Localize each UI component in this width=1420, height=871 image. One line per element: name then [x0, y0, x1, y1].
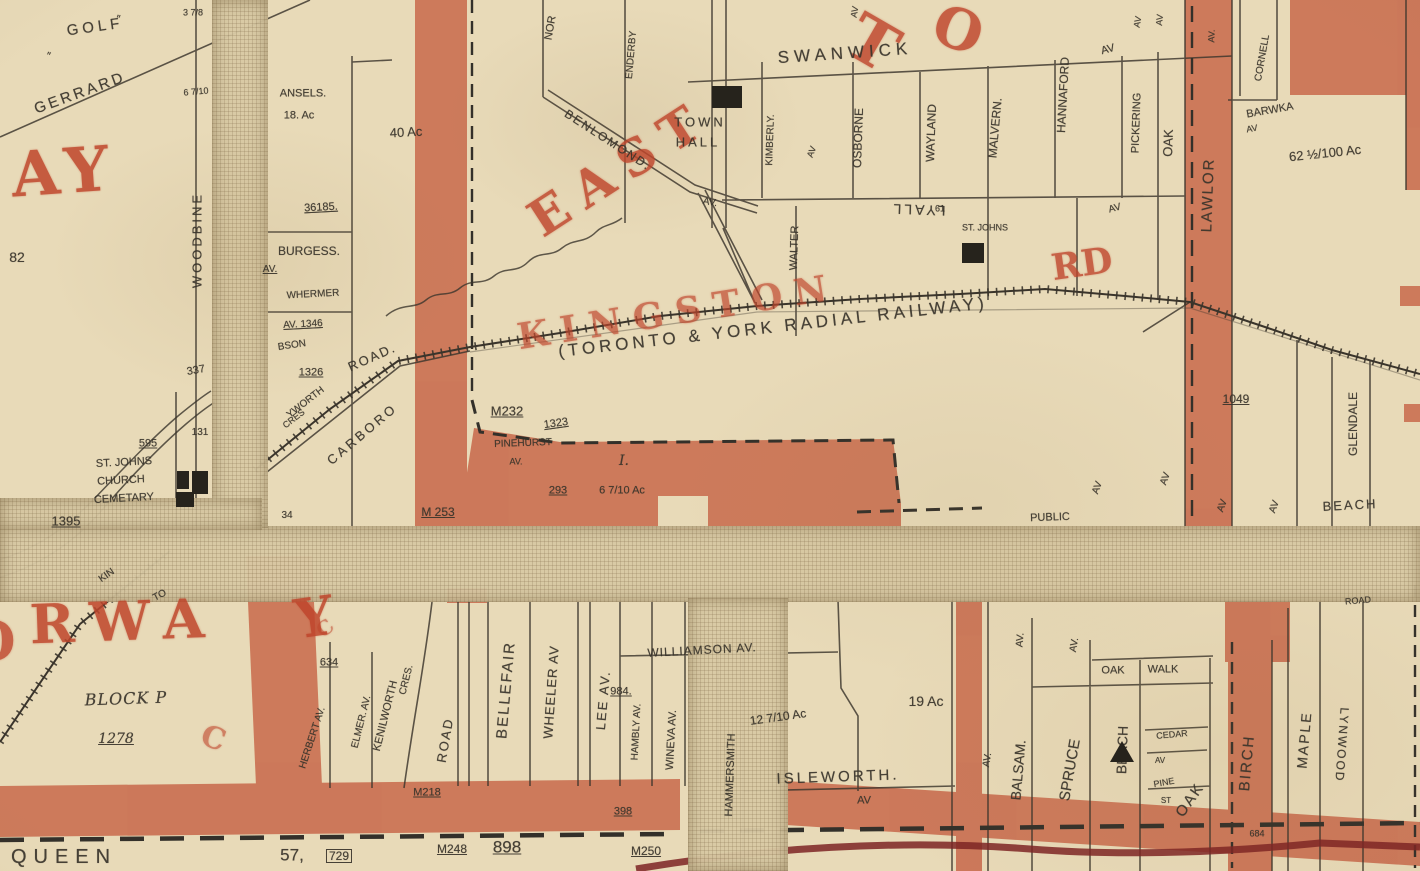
map-label-block-p: BLOCK P: [84, 690, 167, 709]
parcel-gap: [658, 496, 708, 528]
map-label-684: 684: [1249, 830, 1264, 839]
fold-crease-texture: [688, 598, 788, 871]
map-label-av: AV: [857, 796, 871, 807]
cemetery-building: [176, 492, 194, 507]
map-label-hall: HALL: [676, 136, 721, 149]
map-label-pickering: PICKERING: [1130, 93, 1143, 154]
map-label-av: AV: [1246, 124, 1259, 135]
map-label-glendale: GLENDALE: [1347, 392, 1359, 456]
map-label-40-ac: 40 Ac: [389, 125, 422, 140]
map-label-i: I.: [619, 454, 629, 468]
map-label-729: 729: [326, 849, 352, 863]
map-label-82: 82: [9, 250, 25, 264]
map-label-lawlor: LAWLOR: [1199, 157, 1217, 232]
map-label-av: AV.: [1207, 29, 1216, 42]
map-label-wayland: WAYLAND: [924, 104, 938, 162]
map-label-st: ST: [1161, 797, 1171, 805]
map-label-town: TOWN: [674, 116, 725, 129]
map-label-34: 34: [281, 511, 292, 521]
map-label-ay: AY: [9, 137, 118, 206]
map-label-av: AV.: [1015, 632, 1026, 647]
map-label-6-7-10-ac: 6 7/10 Ac: [599, 486, 645, 497]
map-label-av: AV: [1155, 757, 1165, 765]
map-label-1278: 1278: [98, 732, 134, 746]
map-label-av: AV: [1133, 16, 1144, 29]
map-label-rd: RD: [1049, 242, 1115, 286]
map-label-131: 131: [192, 428, 209, 438]
map-label-public: PUBLIC: [1030, 512, 1070, 524]
map-label-oak: OAK: [1101, 666, 1124, 677]
map-label-293: 293: [549, 486, 567, 497]
map-label-m-253: M 253: [421, 506, 454, 518]
map-label-19-ac: 19 Ac: [908, 694, 943, 708]
map-label-398: 398: [614, 807, 632, 818]
map-label-m248: M248: [437, 843, 467, 855]
map-label-oak: OAK: [1161, 129, 1175, 157]
map-label-woodbine: WOODBINE: [191, 192, 204, 288]
map-label-m232: M232: [491, 405, 524, 418]
map-label-1049: 1049: [1223, 393, 1250, 405]
map-label-pinehurst: PINEHURST: [494, 438, 552, 450]
map-label-898: 898: [493, 839, 521, 856]
town-hall-building: [712, 86, 742, 108]
map-label-osborne: OSBORNE: [851, 108, 865, 168]
map-label-burgess: BURGESS.: [278, 245, 340, 257]
map-label-st-johns: ST. JOHNS: [962, 224, 1008, 233]
cemetery-building: [192, 471, 208, 494]
map-label-o: O: [0, 614, 16, 668]
st-johns-building: [962, 243, 984, 263]
map-label-ansels: ANSELS.: [280, 89, 326, 100]
map-label-av: AV: [850, 6, 861, 19]
map-label-hannaford: HANNAFORD: [1055, 57, 1071, 134]
map-label-rwa: RWA: [29, 591, 222, 652]
map-label-36185: 36185.: [304, 202, 338, 215]
map-label-57: 57,: [280, 847, 304, 864]
map-label-walter: WALTER: [789, 226, 802, 271]
cemetery-building: [177, 471, 189, 489]
fold-crease-texture: [212, 0, 268, 528]
map-label-3-7-8: 3 7/8: [183, 9, 203, 18]
map-label-av: AV: [1155, 14, 1165, 26]
map-label-61: 61: [935, 205, 945, 214]
map-label-av: AV.: [509, 458, 522, 467]
map-label-1326: 1326: [299, 368, 323, 379]
map-label-av: AV.: [263, 265, 277, 275]
map-label-1395: 1395: [52, 515, 81, 528]
map-label-984: 984.: [610, 687, 631, 698]
historical-map-canvas: GOLFGERRARD″″3 7/86 7/10WOODBINE82AYANSE…: [0, 0, 1420, 871]
map-label-beach: BEACH: [1322, 497, 1377, 513]
map-label-m218: M218: [413, 788, 441, 799]
map-label-18-ac: 18. Ac: [284, 111, 315, 122]
map-label-isleworth: ISLEWORTH.: [776, 767, 900, 786]
map-label-595: 595: [139, 439, 157, 450]
map-label-av-1346: AV. 1346: [283, 319, 323, 331]
map-label-634: 634: [320, 658, 338, 669]
map-label-walk: WALK: [1148, 665, 1179, 676]
map-label-m250: M250: [631, 845, 661, 857]
map-label-queen: QUEEN: [11, 847, 117, 867]
map-label-kimberly: KIMBERLY.: [765, 114, 777, 166]
